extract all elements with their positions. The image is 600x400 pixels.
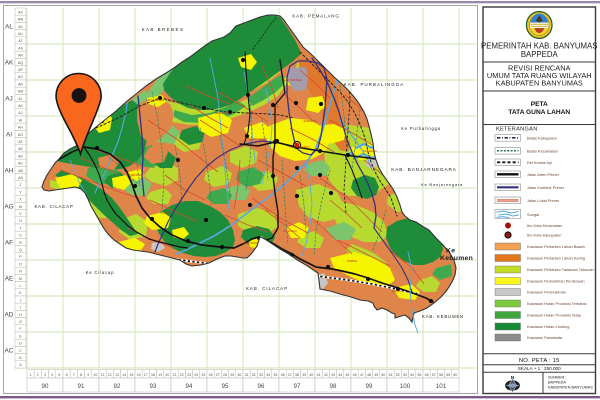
svg-text:Kawasan Pertanian Lahan Basah: Kawasan Pertanian Lahan Basah bbox=[527, 244, 585, 249]
svg-text:AE: AE bbox=[18, 147, 23, 151]
svg-text:92: 92 bbox=[114, 383, 121, 390]
svg-text:SUMBANG: SUMBANG bbox=[303, 119, 316, 123]
svg-text:90: 90 bbox=[42, 383, 49, 390]
svg-text:PETA: PETA bbox=[531, 101, 548, 108]
svg-text:6: 6 bbox=[66, 373, 68, 377]
svg-text:G: G bbox=[19, 320, 22, 324]
svg-text:AX: AX bbox=[18, 10, 23, 14]
svg-text:32: 32 bbox=[252, 373, 256, 377]
svg-text:AJ: AJ bbox=[5, 95, 12, 102]
svg-text:BAPPEDA: BAPPEDA bbox=[521, 50, 559, 59]
svg-text:Ke Cilacap: Ke Cilacap bbox=[86, 270, 115, 275]
svg-text:AI: AI bbox=[6, 131, 12, 138]
svg-text:AG: AG bbox=[18, 133, 23, 137]
svg-text:48: 48 bbox=[367, 373, 371, 377]
svg-text:7: 7 bbox=[73, 373, 75, 377]
svg-text:4: 4 bbox=[51, 373, 53, 377]
svg-text:35: 35 bbox=[273, 373, 277, 377]
svg-text:M: M bbox=[19, 277, 22, 281]
svg-text:Kawasan Pemukiman Perdesaan: Kawasan Pemukiman Perdesaan bbox=[527, 279, 585, 284]
svg-text:57: 57 bbox=[432, 373, 436, 377]
svg-text:19: 19 bbox=[158, 373, 162, 377]
svg-text:100: 100 bbox=[400, 383, 411, 390]
svg-text:29: 29 bbox=[230, 373, 234, 377]
svg-text:KABUPATEN BANYUMAS: KABUPATEN BANYUMAS bbox=[548, 386, 593, 390]
svg-text:10: 10 bbox=[93, 373, 97, 377]
svg-text:AF: AF bbox=[18, 140, 23, 144]
svg-text:PAGUYANGAN: PAGUYANGAN bbox=[146, 98, 164, 102]
svg-text:AL: AL bbox=[5, 23, 13, 30]
svg-text:H: H bbox=[19, 313, 22, 317]
svg-text:KED BANTENG: KED BANTENG bbox=[284, 78, 303, 82]
svg-text:1: 1 bbox=[30, 373, 32, 377]
svg-text:TATA GUNA LAHAN: TATA GUNA LAHAN bbox=[508, 109, 570, 116]
svg-text:46: 46 bbox=[353, 373, 357, 377]
svg-text:30: 30 bbox=[237, 373, 241, 377]
svg-text:98: 98 bbox=[330, 383, 337, 390]
svg-text:Ke Banjarnegara: Ke Banjarnegara bbox=[421, 182, 463, 187]
svg-text:Kawasan Pariwisata: Kawasan Pariwisata bbox=[527, 335, 563, 340]
svg-text:AH: AH bbox=[18, 126, 23, 130]
svg-text:Batas Kecamatan: Batas Kecamatan bbox=[527, 148, 558, 153]
svg-text:Kawasan Permukiman: Kawasan Permukiman bbox=[527, 290, 566, 295]
svg-text:KAB. CILACAP: KAB. CILACAP bbox=[246, 286, 288, 291]
svg-text:Kawasan Hutan Produksi Terbata: Kawasan Hutan Produksi Terbatas bbox=[527, 301, 587, 306]
svg-text:KAB BREBES: KAB BREBES bbox=[142, 27, 185, 32]
svg-text:5: 5 bbox=[58, 373, 60, 377]
svg-text:20: 20 bbox=[165, 373, 169, 377]
svg-text:Ke: Ke bbox=[446, 248, 455, 255]
svg-text:39: 39 bbox=[302, 373, 306, 377]
svg-text:21: 21 bbox=[173, 373, 177, 377]
svg-text:U: U bbox=[19, 219, 22, 223]
svg-text:AU: AU bbox=[18, 32, 23, 36]
svg-text:KETERANGAN: KETERANGAN bbox=[496, 127, 538, 133]
svg-text:94: 94 bbox=[186, 383, 193, 390]
svg-text:Rel Kereta Api: Rel Kereta Api bbox=[527, 160, 552, 165]
svg-text:AE: AE bbox=[5, 275, 14, 282]
svg-text:AQ: AQ bbox=[18, 61, 23, 65]
svg-text:24: 24 bbox=[194, 373, 198, 377]
svg-text:99: 99 bbox=[366, 383, 373, 390]
svg-text:AB: AB bbox=[18, 169, 23, 173]
svg-text:Kawasan Pertanian Lahan Kering: Kawasan Pertanian Lahan Kering bbox=[527, 256, 585, 261]
svg-text:41: 41 bbox=[317, 373, 321, 377]
svg-text:Q: Q bbox=[19, 248, 22, 252]
svg-text:NO. PETA : 15: NO. PETA : 15 bbox=[519, 358, 560, 364]
svg-text:AG: AG bbox=[4, 203, 13, 210]
svg-text:C: C bbox=[19, 349, 22, 353]
svg-text:11: 11 bbox=[101, 373, 105, 377]
svg-text:AS: AS bbox=[18, 46, 23, 50]
svg-text:53: 53 bbox=[403, 373, 407, 377]
svg-text:AN: AN bbox=[18, 82, 23, 86]
svg-text:15: 15 bbox=[129, 373, 133, 377]
svg-text:23: 23 bbox=[187, 373, 191, 377]
svg-text:52: 52 bbox=[396, 373, 400, 377]
svg-text:N: N bbox=[19, 270, 22, 274]
svg-text:O: O bbox=[19, 262, 22, 266]
svg-text:AV: AV bbox=[18, 25, 23, 29]
svg-text:AC: AC bbox=[5, 347, 14, 354]
svg-text:51: 51 bbox=[389, 373, 393, 377]
svg-text:31: 31 bbox=[245, 373, 249, 377]
svg-text:AJIBARANG: AJIBARANG bbox=[129, 173, 144, 177]
svg-text:AO: AO bbox=[18, 75, 23, 79]
svg-text:J: J bbox=[20, 298, 22, 302]
svg-text:PURWOKERTO: PURWOKERTO bbox=[291, 145, 310, 149]
svg-text:27: 27 bbox=[216, 373, 220, 377]
svg-text:BAPPEDA: BAPPEDA bbox=[548, 381, 566, 385]
svg-text:49: 49 bbox=[374, 373, 378, 377]
svg-text:28: 28 bbox=[223, 373, 227, 377]
svg-text:91: 91 bbox=[78, 383, 85, 390]
svg-text:56: 56 bbox=[425, 373, 429, 377]
svg-text:AK: AK bbox=[5, 59, 14, 66]
svg-text:AA: AA bbox=[18, 176, 23, 180]
svg-text:KEDW LESARI: KEDW LESARI bbox=[249, 137, 267, 141]
svg-text:LUMBIR: LUMBIR bbox=[161, 211, 171, 215]
svg-text:9: 9 bbox=[87, 373, 89, 377]
svg-text:95: 95 bbox=[222, 383, 229, 390]
svg-text:AR: AR bbox=[18, 54, 23, 58]
svg-text:16: 16 bbox=[137, 373, 141, 377]
svg-text:Jalan Arteri Primer: Jalan Arteri Primer bbox=[527, 172, 560, 177]
svg-text:AK: AK bbox=[18, 104, 23, 108]
svg-text:KAB. BANJARNEGARA: KAB. BANJARNEGARA bbox=[391, 167, 457, 172]
svg-text:96: 96 bbox=[258, 383, 265, 390]
svg-text:AJ: AJ bbox=[18, 111, 22, 115]
svg-text:3: 3 bbox=[44, 373, 46, 377]
svg-text:AI: AI bbox=[19, 118, 22, 122]
svg-text:Jalan Lokal Primer: Jalan Lokal Primer bbox=[527, 198, 560, 203]
svg-text:D: D bbox=[19, 342, 22, 346]
svg-text:45: 45 bbox=[345, 373, 349, 377]
svg-text:40: 40 bbox=[309, 373, 313, 377]
svg-text:KAB. PURBALINGGA: KAB. PURBALINGGA bbox=[344, 82, 405, 87]
svg-text:47: 47 bbox=[360, 373, 364, 377]
svg-text:Batas Kabupaten: Batas Kabupaten bbox=[527, 135, 557, 140]
svg-text:55: 55 bbox=[417, 373, 421, 377]
svg-text:W: W bbox=[19, 205, 23, 209]
svg-text:AF: AF bbox=[5, 239, 13, 246]
svg-text:34: 34 bbox=[266, 373, 270, 377]
svg-text:PEKUNCEN: PEKUNCEN bbox=[215, 111, 230, 115]
svg-text:KABUPATEN BANYUMAS: KABUPATEN BANYUMAS bbox=[496, 79, 583, 88]
svg-text:59: 59 bbox=[446, 373, 450, 377]
svg-text:SOKARAJA: SOKARAJA bbox=[363, 149, 377, 153]
svg-text:AD: AD bbox=[18, 154, 23, 158]
svg-text:AW: AW bbox=[18, 18, 24, 22]
svg-text:42: 42 bbox=[324, 373, 328, 377]
svg-text:Jalan Kolektor Primer: Jalan Kolektor Primer bbox=[527, 185, 565, 190]
svg-text:AM: AM bbox=[18, 90, 23, 94]
svg-text:50: 50 bbox=[381, 373, 385, 377]
svg-text:Kawasan Hutan Produksi Tetap: Kawasan Hutan Produksi Tetap bbox=[527, 313, 581, 318]
svg-text:BANYUMAS: BANYUMAS bbox=[243, 241, 258, 245]
svg-text:KAB. CILACAP: KAB. CILACAP bbox=[34, 204, 73, 209]
svg-text:SUMBER :: SUMBER : bbox=[548, 376, 566, 380]
svg-text:26: 26 bbox=[209, 373, 213, 377]
svg-text:Kebumen: Kebumen bbox=[440, 255, 473, 262]
svg-text:54: 54 bbox=[410, 373, 414, 377]
svg-text:Kawasan Hutan Lindung: Kawasan Hutan Lindung bbox=[527, 324, 569, 329]
svg-text:97: 97 bbox=[294, 383, 301, 390]
svg-text:44: 44 bbox=[338, 373, 342, 377]
svg-text:PATIKRAJA: PATIKRAJA bbox=[283, 229, 297, 233]
svg-text:AL: AL bbox=[18, 97, 22, 101]
svg-text:AD: AD bbox=[5, 311, 14, 318]
svg-text:93: 93 bbox=[150, 383, 157, 390]
svg-text:43: 43 bbox=[331, 373, 335, 377]
svg-text:37: 37 bbox=[288, 373, 292, 377]
svg-text:101: 101 bbox=[436, 383, 447, 390]
svg-text:Kawasan Pertanian Tanaman Tahu: Kawasan Pertanian Tanaman Tahunan bbox=[527, 267, 594, 272]
svg-text:Sungai: Sungai bbox=[527, 212, 539, 217]
svg-text:Ke Purbalingga: Ke Purbalingga bbox=[401, 126, 441, 131]
svg-text:KAB. PEMALANG: KAB. PEMALANG bbox=[292, 14, 339, 19]
svg-text:17: 17 bbox=[144, 373, 148, 377]
svg-text:Ibu Kota Kabupaten: Ibu Kota Kabupaten bbox=[527, 233, 561, 238]
svg-text:SUMPIUH: SUMPIUH bbox=[392, 289, 404, 293]
svg-text:AH: AH bbox=[5, 167, 14, 174]
svg-text:L: L bbox=[20, 284, 22, 288]
svg-text:Ibu Kota Kecamatan: Ibu Kota Kecamatan bbox=[527, 223, 562, 228]
svg-text:58: 58 bbox=[439, 373, 443, 377]
svg-text:12: 12 bbox=[108, 373, 112, 377]
svg-text:TAMBAK: TAMBAK bbox=[347, 259, 358, 263]
svg-text:36: 36 bbox=[281, 373, 285, 377]
svg-text:13: 13 bbox=[115, 373, 119, 377]
svg-text:AP: AP bbox=[18, 68, 23, 72]
svg-text:2: 2 bbox=[37, 373, 39, 377]
svg-text:AC: AC bbox=[18, 162, 23, 166]
svg-text:I: I bbox=[20, 306, 21, 310]
svg-text:33: 33 bbox=[259, 373, 263, 377]
svg-text:SKALA + 1 : 250.000: SKALA + 1 : 250.000 bbox=[518, 366, 561, 371]
svg-text:22: 22 bbox=[180, 373, 184, 377]
svg-text:8: 8 bbox=[80, 373, 82, 377]
svg-text:60: 60 bbox=[453, 373, 457, 377]
svg-text:14: 14 bbox=[122, 373, 126, 377]
svg-text:KAB. KEBUMEN: KAB. KEBUMEN bbox=[422, 314, 464, 319]
svg-text:18: 18 bbox=[151, 373, 155, 377]
svg-text:25: 25 bbox=[201, 373, 205, 377]
svg-text:38: 38 bbox=[295, 373, 299, 377]
svg-text:R: R bbox=[19, 241, 22, 245]
